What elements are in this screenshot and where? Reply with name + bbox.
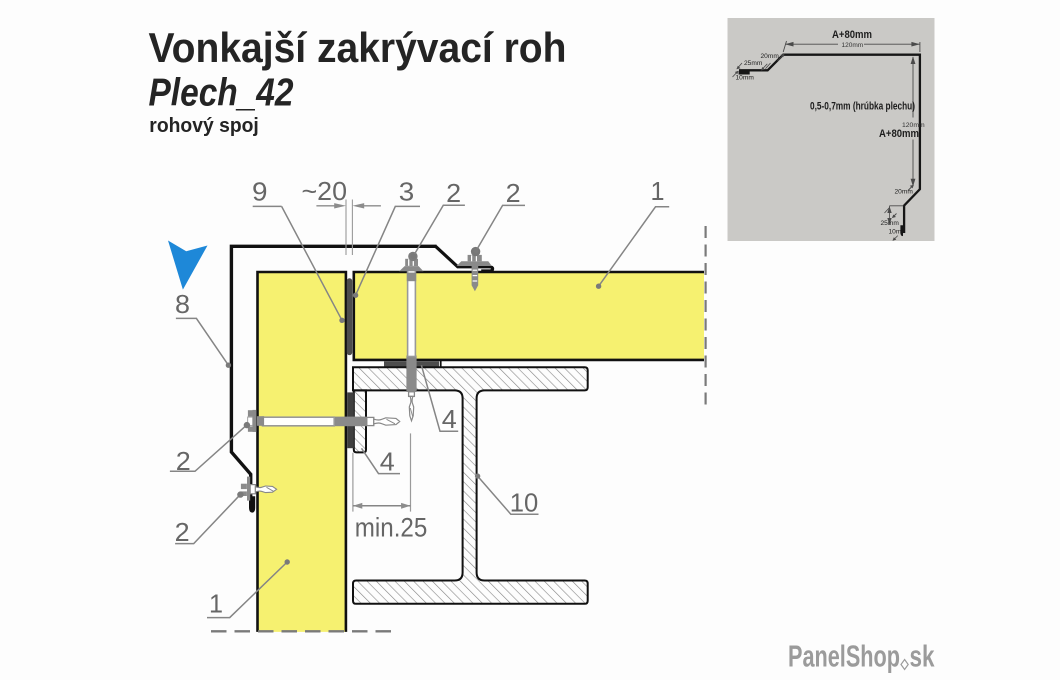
svg-text:PanelShop: PanelShop — [788, 639, 900, 674]
svg-text:2: 2 — [176, 448, 191, 476]
svg-text:25mm: 25mm — [881, 220, 900, 227]
svg-text:25mm: 25mm — [744, 60, 763, 67]
svg-text:A+80mm: A+80mm — [879, 128, 919, 140]
svg-text:1: 1 — [209, 590, 223, 618]
svg-text:4: 4 — [380, 449, 395, 477]
svg-text:2: 2 — [175, 519, 190, 547]
svg-text:2: 2 — [506, 180, 521, 208]
svg-text:20mm: 20mm — [761, 53, 780, 60]
svg-text:sk: sk — [910, 639, 936, 674]
svg-text:9: 9 — [252, 179, 268, 207]
svg-text:1: 1 — [651, 178, 665, 206]
svg-text:10: 10 — [510, 490, 539, 518]
svg-text:2: 2 — [446, 180, 461, 208]
svg-text:120mm: 120mm — [842, 42, 864, 49]
svg-text:10m: 10m — [889, 229, 902, 236]
svg-text:min.25: min.25 — [355, 513, 428, 543]
svg-text:10mm: 10mm — [736, 74, 755, 81]
svg-text:4: 4 — [442, 406, 457, 434]
svg-text:Plech_42: Plech_42 — [149, 72, 295, 115]
svg-text:rohový spoj: rohový spoj — [149, 114, 258, 137]
svg-text:20mm: 20mm — [895, 188, 914, 195]
svg-text:~20: ~20 — [302, 178, 348, 206]
svg-text:8: 8 — [175, 291, 190, 319]
svg-text:3: 3 — [399, 179, 415, 207]
svg-text:0,5-0,7mm (hrúbka plechu): 0,5-0,7mm (hrúbka plechu) — [810, 100, 915, 112]
svg-text:Vonkajší zakrývací roh: Vonkajší zakrývací roh — [149, 24, 567, 71]
svg-text:A+80mm: A+80mm — [832, 29, 872, 41]
